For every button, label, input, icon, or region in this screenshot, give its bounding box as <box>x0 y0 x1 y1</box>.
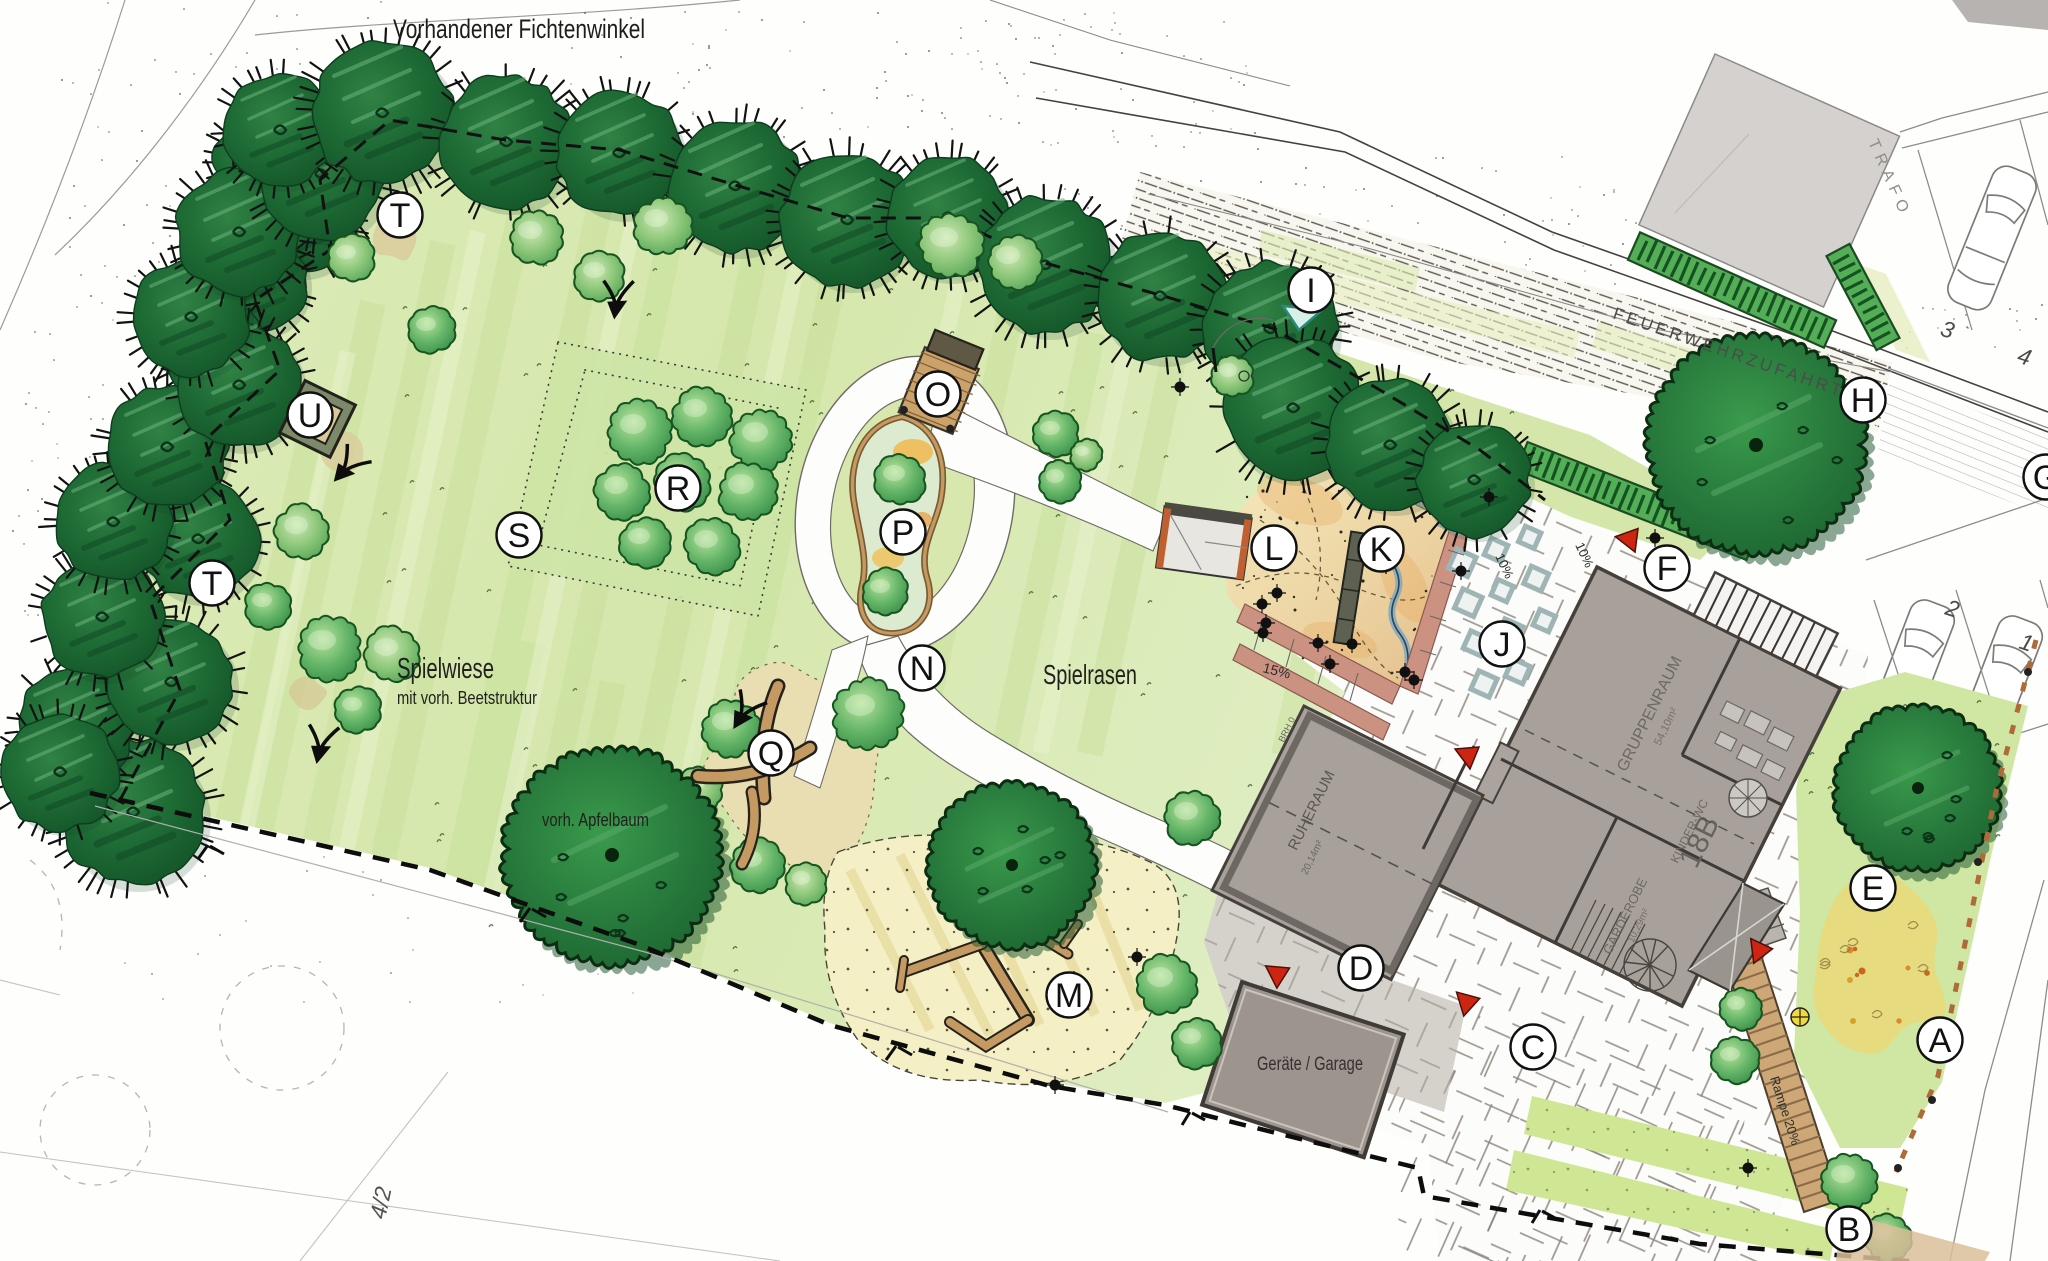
svg-text:Spielwiese: Spielwiese <box>397 653 494 685</box>
svg-text:H: H <box>1851 382 1876 420</box>
svg-text:N: N <box>910 650 935 688</box>
svg-text:R: R <box>666 470 691 508</box>
svg-text:D: D <box>1349 950 1374 988</box>
svg-text:E: E <box>1862 870 1885 908</box>
svg-text:T: T <box>390 197 411 235</box>
svg-text:G: G <box>2033 459 2048 497</box>
svg-text:J: J <box>1494 626 1511 664</box>
svg-text:Vorhandener Fichtenwinkel: Vorhandener Fichtenwinkel <box>393 14 645 44</box>
svg-text:L: L <box>1265 530 1284 568</box>
svg-text:B: B <box>1838 1211 1861 1249</box>
svg-text:vorh. Apfelbaum: vorh. Apfelbaum <box>542 810 649 830</box>
svg-text:I: I <box>1306 272 1315 310</box>
svg-text:M: M <box>1055 977 1083 1015</box>
svg-text:K: K <box>1370 531 1393 569</box>
svg-text:F: F <box>1657 550 1678 588</box>
svg-text:T: T <box>202 565 223 603</box>
svg-text:Geräte / Garage: Geräte / Garage <box>1257 1054 1363 1075</box>
svg-text:C: C <box>1521 1029 1546 1067</box>
svg-text:S: S <box>508 517 531 555</box>
svg-text:mit vorh. Beetstruktur: mit vorh. Beetstruktur <box>397 688 537 708</box>
svg-text:Q: Q <box>758 735 784 773</box>
svg-text:P: P <box>892 514 915 552</box>
svg-text:O: O <box>925 376 951 414</box>
svg-text:Spielrasen: Spielrasen <box>1043 659 1137 690</box>
svg-text:A: A <box>1929 1022 1952 1060</box>
svg-text:U: U <box>298 397 323 435</box>
